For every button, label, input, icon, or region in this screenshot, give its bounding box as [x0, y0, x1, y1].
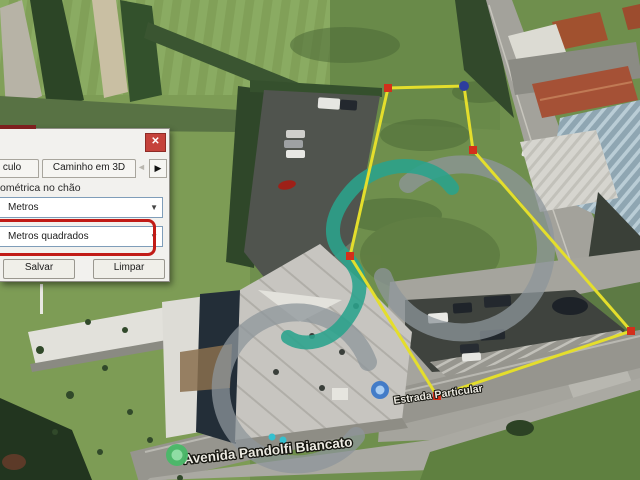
measurement-vertex-active[interactable]: [459, 81, 469, 91]
map-pin[interactable]: [371, 381, 389, 399]
dialog-titlebar-sliver: [0, 125, 36, 129]
ruler-dialog: ✕ culo Caminho em 3D ◄ ▶ ométrica no chã…: [0, 128, 170, 282]
tab-scroll-next-icon[interactable]: ▶: [149, 159, 167, 178]
chevron-down-icon: ▼: [150, 198, 158, 218]
length-unit-dropdown[interactable]: Metros ▼: [0, 197, 163, 218]
measurement-vertex[interactable]: [384, 84, 392, 92]
clear-button[interactable]: Limpar: [93, 259, 165, 279]
measurement-vertex[interactable]: [346, 252, 354, 260]
length-unit-value: Metros: [8, 202, 39, 213]
ground-measure-label: ométrica no chão: [0, 182, 81, 194]
measurement-vertex[interactable]: [469, 146, 477, 154]
tab-scroll-prev-icon[interactable]: ◄: [137, 162, 146, 172]
area-unit-value: Metros quadrados: [8, 231, 89, 242]
area-unit-dropdown[interactable]: Metros quadrados ▼: [0, 226, 163, 247]
tab-caminho-3d[interactable]: Caminho em 3D: [42, 159, 136, 178]
save-button[interactable]: Salvar: [3, 259, 75, 279]
dialog-tabs: culo Caminho em 3D ◄ ▶: [0, 159, 169, 178]
close-icon[interactable]: ✕: [145, 133, 166, 152]
screenshot-stage: Estrada Particular Avenida Pandolfi Bian…: [0, 0, 640, 480]
chevron-down-icon: ▼: [150, 227, 158, 247]
measurement-vertex[interactable]: [627, 327, 635, 335]
tab-circulo[interactable]: culo: [0, 159, 39, 178]
green-marker[interactable]: [166, 444, 188, 466]
